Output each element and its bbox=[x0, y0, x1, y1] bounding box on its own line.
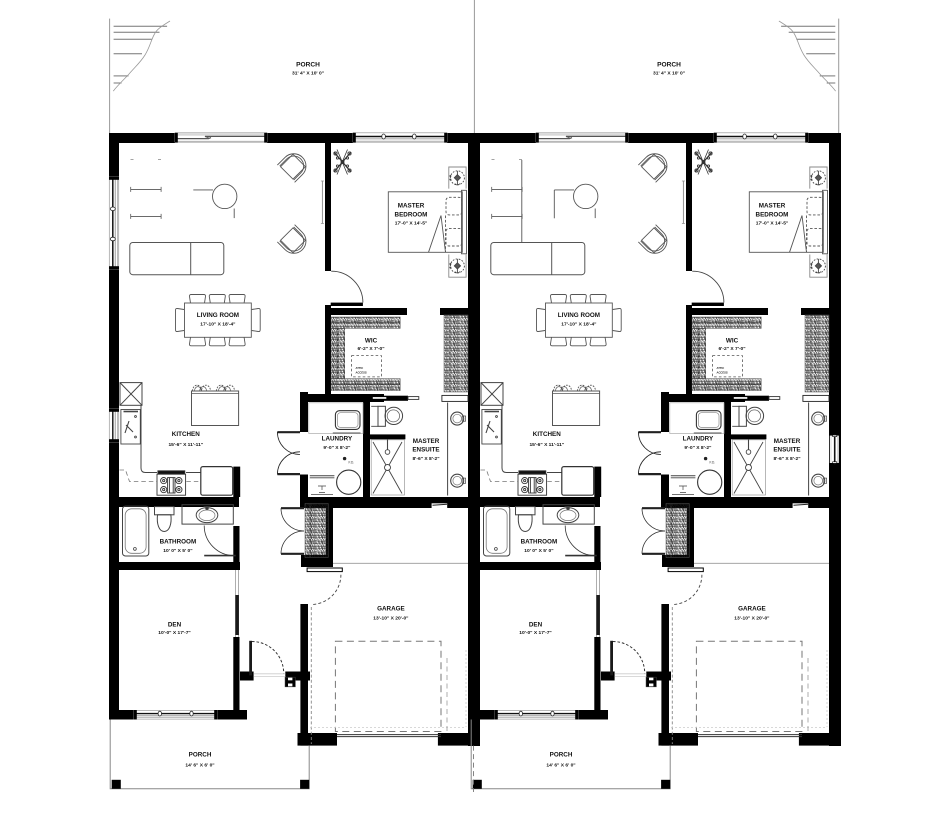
svg-text:9'-0" X 8'-2": 9'-0" X 8'-2" bbox=[323, 445, 350, 451]
svg-text:F.D.: F.D. bbox=[349, 460, 355, 464]
svg-text:10' 0" X 5' 0": 10' 0" X 5' 0" bbox=[163, 548, 192, 554]
svg-text:15'-6" X 11'-11": 15'-6" X 11'-11" bbox=[529, 442, 564, 448]
svg-text:PORCH: PORCH bbox=[657, 62, 681, 69]
svg-text:DEN: DEN bbox=[529, 622, 543, 629]
svg-text:GARAGE: GARAGE bbox=[738, 606, 766, 613]
svg-text:10'-0" X 17'-7": 10'-0" X 17'-7" bbox=[158, 630, 191, 636]
svg-text:BATHROOM: BATHROOM bbox=[160, 539, 197, 546]
svg-text:BEDROOM: BEDROOM bbox=[756, 212, 789, 219]
svg-text:31' 4" X 10' 0": 31' 4" X 10' 0" bbox=[292, 71, 324, 77]
svg-text:31' 4" X 10' 0": 31' 4" X 10' 0" bbox=[653, 71, 685, 77]
svg-text:14' 6" X 6' 0": 14' 6" X 6' 0" bbox=[185, 762, 214, 768]
svg-text:8'-6" X 8'-2": 8'-6" X 8'-2" bbox=[773, 456, 800, 462]
svg-text:WIC: WIC bbox=[365, 338, 378, 345]
svg-text:17'-0" X 14'-5": 17'-0" X 14'-5" bbox=[395, 221, 428, 227]
svg-text:10' 0" X 5' 0": 10' 0" X 5' 0" bbox=[524, 548, 553, 554]
svg-text:MASTER: MASTER bbox=[759, 203, 786, 210]
svg-text:ENSUITE: ENSUITE bbox=[773, 447, 800, 454]
svg-text:6'-2" X 7'-0": 6'-2" X 7'-0" bbox=[357, 346, 384, 352]
svg-text:PORCH: PORCH bbox=[550, 751, 573, 758]
svg-text:PORCH: PORCH bbox=[296, 62, 320, 69]
svg-text:ACCESS: ACCESS bbox=[717, 370, 728, 374]
svg-text:14' 6" X 6' 0": 14' 6" X 6' 0" bbox=[546, 762, 575, 768]
svg-text:MASTER: MASTER bbox=[413, 438, 440, 445]
svg-text:13'-10" X 20'-0": 13'-10" X 20'-0" bbox=[734, 616, 769, 622]
svg-text:DEN: DEN bbox=[168, 622, 182, 629]
svg-text:ATTIC: ATTIC bbox=[356, 366, 364, 370]
svg-text:10'-0" X 17'-7": 10'-0" X 17'-7" bbox=[519, 630, 552, 636]
svg-text:LIVING ROOM: LIVING ROOM bbox=[197, 312, 239, 319]
svg-text:ENSUITE: ENSUITE bbox=[412, 447, 439, 454]
svg-text:6'-2" X 7'-0": 6'-2" X 7'-0" bbox=[718, 346, 745, 352]
svg-text:17'-10" X 18'-4": 17'-10" X 18'-4" bbox=[200, 321, 235, 327]
svg-text:KITCHEN: KITCHEN bbox=[172, 431, 200, 438]
svg-text:LAUNDRY: LAUNDRY bbox=[683, 436, 714, 443]
svg-text:MASTER: MASTER bbox=[774, 438, 801, 445]
svg-text:KITCHEN: KITCHEN bbox=[533, 431, 561, 438]
svg-text:15'-6" X 11'-11": 15'-6" X 11'-11" bbox=[168, 442, 203, 448]
svg-text:8'-6" X 8'-2": 8'-6" X 8'-2" bbox=[412, 456, 439, 462]
svg-text:ACCESS: ACCESS bbox=[356, 370, 367, 374]
svg-text:BEDROOM: BEDROOM bbox=[395, 212, 428, 219]
svg-text:13'-10" X 20'-0": 13'-10" X 20'-0" bbox=[373, 616, 408, 622]
svg-text:F.D.: F.D. bbox=[710, 460, 716, 464]
svg-text:BATHROOM: BATHROOM bbox=[521, 539, 558, 546]
svg-text:MASTER: MASTER bbox=[398, 203, 425, 210]
svg-text:LIVING ROOM: LIVING ROOM bbox=[558, 312, 600, 319]
svg-text:9'-0" X 8'-2": 9'-0" X 8'-2" bbox=[684, 445, 711, 451]
svg-text:ATTIC: ATTIC bbox=[717, 366, 725, 370]
svg-text:17'-0" X 14'-5": 17'-0" X 14'-5" bbox=[756, 221, 789, 227]
svg-text:17'-10" X 18'-4": 17'-10" X 18'-4" bbox=[561, 321, 596, 327]
svg-text:LAUNDRY: LAUNDRY bbox=[322, 436, 353, 443]
svg-text:WIC: WIC bbox=[726, 338, 739, 345]
svg-text:PORCH: PORCH bbox=[189, 751, 212, 758]
svg-text:GARAGE: GARAGE bbox=[377, 606, 405, 613]
